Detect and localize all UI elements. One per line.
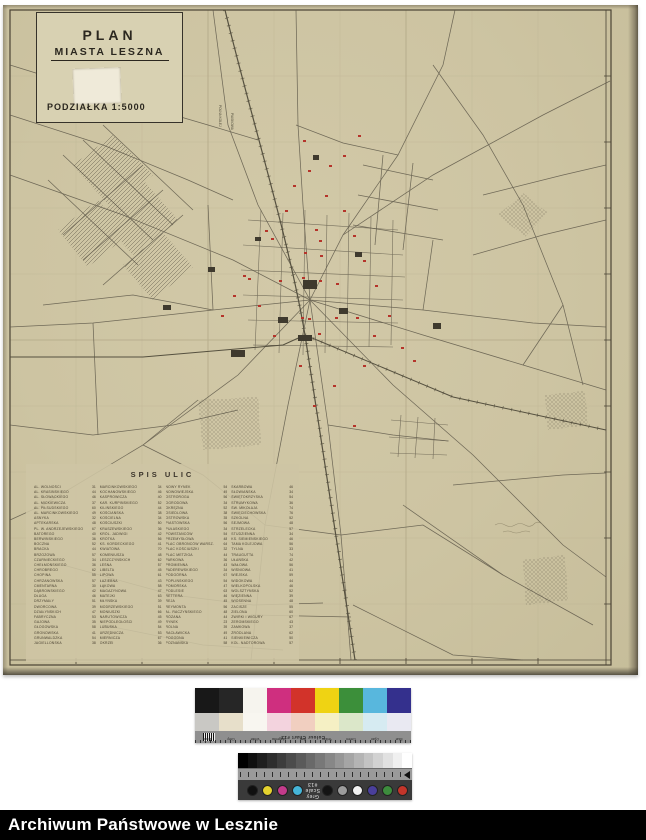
archive-name: Archiwum Państwowe w Lesznie [8,815,278,835]
grey-step [383,753,393,768]
grey-step [335,753,345,768]
tint-patch [219,713,243,731]
street-index-title: SPIS ULIC [26,464,299,479]
colour-patch [363,688,387,713]
patch-label: Grey [219,731,243,743]
street-index-column: AL. WOLNOŚCI31AL. KRASIŃSKIEGO44AL. SŁOW… [34,485,96,646]
grey-step [364,753,374,768]
calibration-dot [247,785,258,796]
dot-group-left [245,785,305,796]
patch-label: Yellow [315,731,339,743]
grey-step [373,753,383,768]
tint-patch [195,713,219,731]
calibration-dot [262,785,273,796]
street-index-entry: POZNAŃSKA58 [166,641,228,646]
tint-patch [315,713,339,731]
map-title: PLAN [37,27,182,43]
grey-step [325,753,335,768]
grey-step [354,753,364,768]
colour-patch [387,688,411,713]
grey-step [267,753,277,768]
dot-group-right [365,785,410,796]
colour-patch [315,688,339,713]
calibration-dot [397,785,408,796]
colour-chart-label-band: Colour Chart #13 BlackGreyWhiteMagentaRe… [195,731,411,743]
grey-step [248,753,258,768]
map-title-cartouche: PLAN MIASTA LESZNA PODZIAŁKA 1:5000 [36,12,183,123]
grey-step [306,753,316,768]
patch-label: Green [339,731,363,743]
colour-patch [339,688,363,713]
street-index: SPIS ULIC AL. WOLNOŚCI31AL. KRASIŃSKIEGO… [26,464,299,662]
road-label: POLNA KOLEJ [218,105,222,127]
colour-chart-saturated-row [195,688,411,713]
dot-group-mid [320,785,365,796]
tint-patch [243,713,267,731]
grey-step [402,753,412,768]
calibration-dot [322,785,333,796]
colour-chart-tint-row [195,713,411,731]
map-scale-label: PODZIAŁKA 1:5000 [47,102,146,112]
street-index-entry: JAGIELLOŃSKA38 [34,641,96,646]
street-index-column: SKARBOWA46SŁOWIAŃSKA34ŚWIĘTOKRZYSKA54STR… [231,485,293,646]
patch-label: Red [291,731,315,743]
grey-step [277,753,287,768]
colour-patch [291,688,315,713]
archive-footer-bar: Archiwum Państwowe w Lesznie [0,810,646,840]
centre-street-grid [241,210,449,459]
street-index-columns: AL. WOLNOŚCI31AL. KRASIŃSKIEGO44AL. SŁOW… [26,479,299,646]
calibration-dot [292,785,303,796]
patch-label: Magenta [267,731,291,743]
patch-label: Cyan [363,731,387,743]
red-markers [221,135,416,427]
calibration-dot [382,785,393,796]
colour-patch [195,688,219,713]
colour-patch [243,688,267,713]
tint-patch [387,713,411,731]
tint-patch [267,713,291,731]
grey-step [296,753,306,768]
colour-patch [267,688,291,713]
grey-step [238,753,248,768]
arrow-marker-icon [404,771,410,779]
street-index-entry: OKRZEI36 [100,641,162,646]
calibration-dot [352,785,363,796]
calibration-dot [337,785,348,796]
map-subtitle: MIASTA LESZNA [51,46,169,61]
tint-patch [363,713,387,731]
grey-step [315,753,325,768]
grey-scale-title: Grey Scale #13 [305,781,320,799]
grey-scale-dot-band: Grey Scale #13 [238,780,412,800]
calibration-dot [367,785,378,796]
patch-label: Black [195,731,219,743]
grey-step [286,753,296,768]
pencil-note-squiggle [495,522,543,533]
map-scan-sheet: POLNA KOLEJ PIASKOWA PLAN MIASTA LESZNA … [3,5,638,675]
grey-step [257,753,267,768]
tint-patch [291,713,315,731]
grey-gradient-row [238,753,412,768]
grey-scale-ruler [238,768,412,780]
colour-chart-strip: Colour Chart #13 BlackGreyWhiteMagentaRe… [195,688,411,743]
patch-label: White [243,731,267,743]
calibration-dot [277,785,288,796]
road-label: PIASKOWA [230,113,234,131]
patch-label: Blue [387,731,411,743]
ruler-ticks [240,772,402,777]
street-index-column: NOWY RYNEK54NOWOWIEJSKA49OSTROROGA56OGRO… [166,485,228,646]
colour-patch [219,688,243,713]
grey-scale-strip: Grey Scale #13 [238,753,412,800]
hatched-blocks [58,135,193,300]
tint-patch [339,713,363,731]
street-index-entry: KOL. NADTOROWA57 [231,641,293,646]
grey-step [393,753,403,768]
street-index-column: MARCINKOWSKIEGO34KOCHANOWSKIEGO46KASPROW… [100,485,162,646]
grey-step [344,753,354,768]
paper-repair-patch [72,67,121,105]
